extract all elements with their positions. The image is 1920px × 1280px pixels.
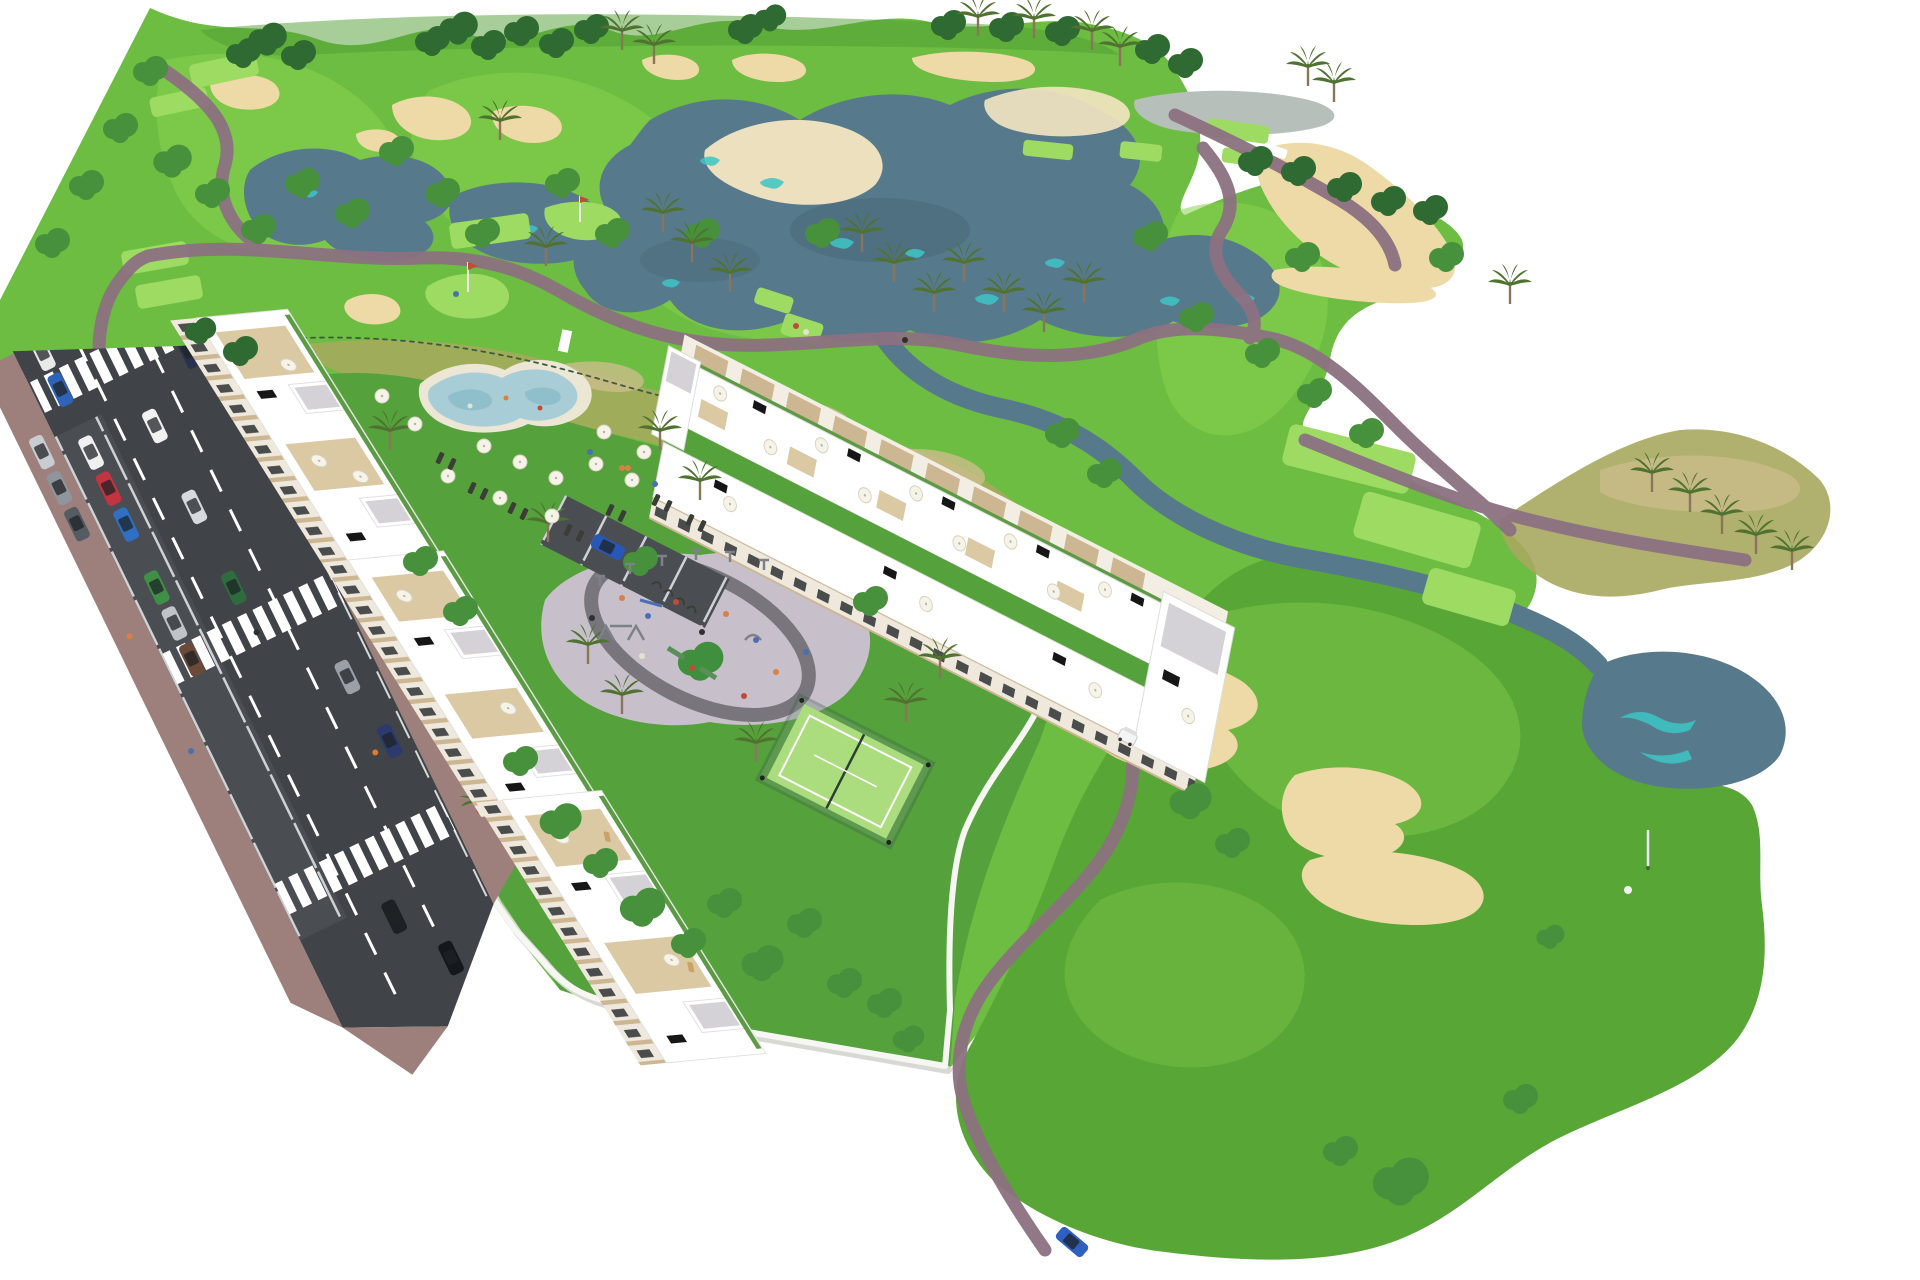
- person: [589, 615, 595, 621]
- golfer: [453, 291, 459, 297]
- umbrella: [637, 445, 651, 459]
- person: [645, 613, 651, 619]
- golfer: [793, 323, 799, 329]
- umbrella: [477, 439, 491, 453]
- umbrella: [549, 471, 563, 485]
- umbrella: [625, 473, 639, 487]
- umbrella: [545, 509, 559, 523]
- person: [689, 665, 695, 671]
- person: [753, 637, 759, 643]
- person: [587, 449, 593, 455]
- person: [673, 599, 679, 605]
- person: [723, 611, 729, 617]
- bunker-cluster-right: [1282, 767, 1421, 859]
- aerial-render-stage: [0, 0, 1920, 1280]
- golf-hole: [1646, 866, 1650, 870]
- umbrella: [597, 425, 611, 439]
- person: [504, 396, 509, 401]
- person: [902, 337, 908, 343]
- golfer: [1624, 886, 1632, 894]
- umbrella: [493, 491, 507, 505]
- umbrella: [513, 455, 527, 469]
- person: [652, 481, 658, 487]
- person: [741, 693, 747, 699]
- person: [468, 404, 473, 409]
- person: [625, 465, 631, 471]
- person: [699, 629, 705, 635]
- umbrella: [589, 457, 603, 471]
- person: [538, 406, 543, 411]
- person: [773, 669, 779, 675]
- person: [619, 465, 625, 471]
- umbrella: [375, 389, 389, 403]
- person: [803, 649, 809, 655]
- person: [639, 653, 645, 659]
- golfer: [803, 329, 809, 335]
- person: [619, 595, 625, 601]
- umbrella: [408, 417, 422, 431]
- aerial-render-canvas: [0, 0, 1920, 1280]
- umbrella: [441, 469, 455, 483]
